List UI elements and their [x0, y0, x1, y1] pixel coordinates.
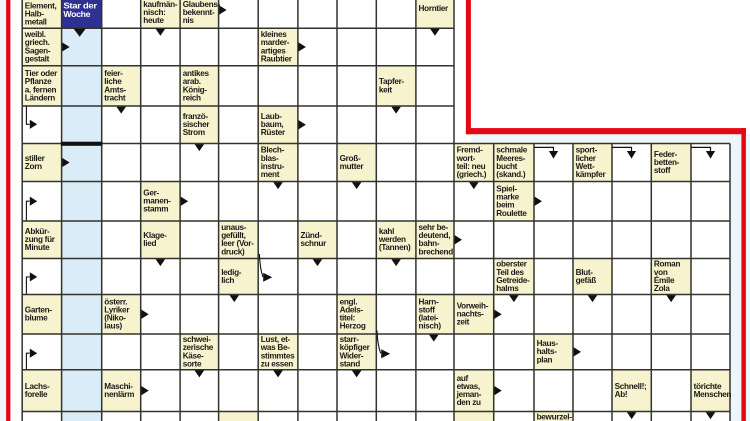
svg-text:Lust, et-was Be-stimmteszu ess: Lust, et-was Be-stimmteszu essen: [260, 335, 295, 368]
svg-text:Maschi-nenlärm: Maschi-nenlärm: [104, 382, 134, 399]
svg-text:Lachs-forelle: Lachs-forelle: [25, 382, 50, 399]
svg-text:Harn-stoff(latei-nisch): Harn-stoff(latei-nisch): [419, 297, 442, 330]
svg-text:schmaleMeeres-bucht(skand.): schmaleMeeres-bucht(skand.): [496, 146, 527, 179]
svg-text:Tier oderPflanzea. fernenLände: Tier oderPflanzea. fernenLändern: [25, 69, 58, 102]
svg-text:Horntier: Horntier: [419, 4, 450, 13]
svg-text:bewurzel-: bewurzel-: [537, 413, 573, 421]
svg-text:Fremd-wort-teil: neu(griech.): Fremd-wort-teil: neu(griech.): [456, 146, 487, 179]
